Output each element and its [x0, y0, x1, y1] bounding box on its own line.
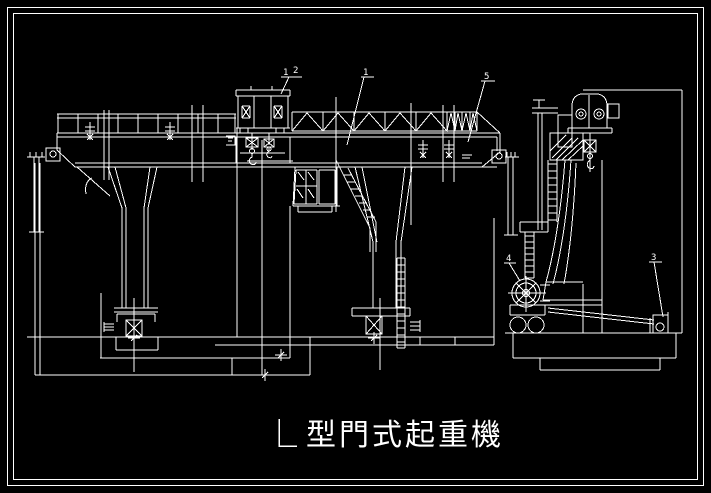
section-lines: [336, 97, 411, 225]
front-view: [27, 86, 519, 381]
cad-page: 1 2 1 5 4 3 型門式起重機: [0, 0, 711, 493]
side-view: [505, 90, 682, 370]
side-leg-profile: [540, 160, 602, 333]
side-dimension-lines: [505, 333, 682, 370]
walkway-railing: [57, 114, 236, 133]
title-L-symbol: [279, 419, 297, 446]
side-hoist: [584, 133, 596, 172]
top-truss: [292, 112, 500, 133]
drawing-title: 型門式起重機: [279, 418, 504, 453]
callout-label: 2: [293, 66, 298, 76]
title-text: 型門式起重機: [306, 418, 504, 453]
right-leg: [352, 167, 420, 348]
callout-label: 5: [484, 72, 489, 82]
operator-cabin: [293, 167, 340, 212]
sheet-border: [8, 8, 704, 486]
callout-label: 1: [283, 68, 288, 78]
callout-label: 1: [363, 68, 368, 78]
callout-label: 3: [651, 253, 656, 263]
clearance-outline: [583, 90, 682, 333]
side-bogie-and-base: [510, 305, 668, 333]
callouts: 1 2 1 5 4 3: [281, 66, 663, 317]
left-leg: [77, 167, 158, 350]
datum-cross-marks: [128, 332, 380, 381]
crane-drawing-svg: 1 2 1 5 4 3 型門式起重機: [0, 0, 711, 493]
left-end-buffer: [27, 148, 60, 232]
callout-label: 4: [506, 254, 511, 264]
front-dimension-lines: [27, 128, 494, 381]
side-trolley: [568, 94, 619, 133]
